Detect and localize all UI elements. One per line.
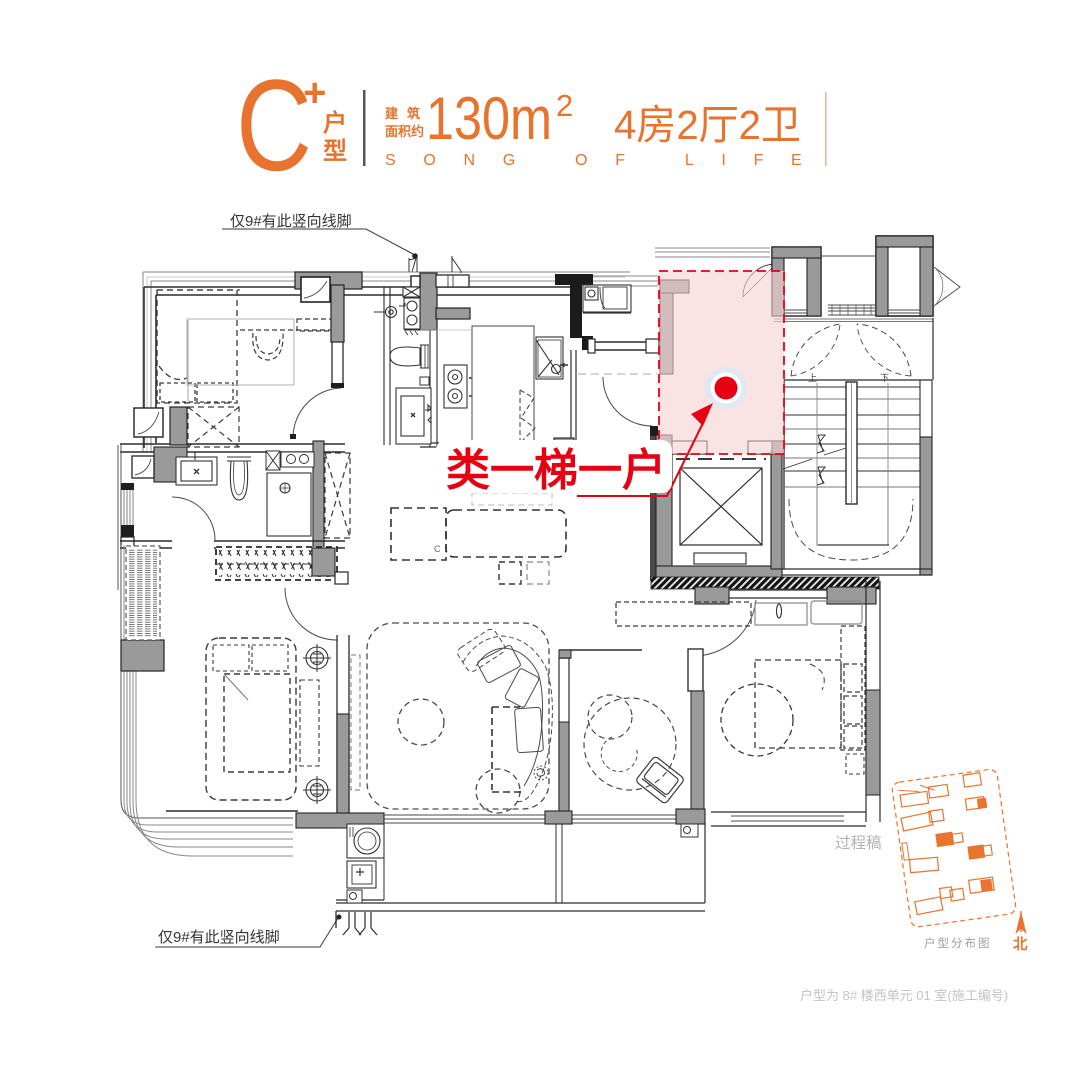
svg-text:4房2厅2卫: 4房2厅2卫 bbox=[614, 102, 801, 148]
svg-text:建筑: 建筑 bbox=[385, 106, 429, 121]
svg-text:130m: 130m bbox=[426, 85, 552, 152]
svg-text:北: 北 bbox=[1013, 936, 1028, 953]
svg-text:下: 下 bbox=[880, 373, 889, 383]
svg-text:仅9#有此竖向线脚: 仅9#有此竖向线脚 bbox=[230, 213, 352, 230]
svg-text:+: + bbox=[303, 71, 326, 115]
svg-text:面积约: 面积约 bbox=[385, 124, 424, 139]
svg-text:类一梯一户: 类一梯一户 bbox=[446, 446, 666, 495]
svg-text:2: 2 bbox=[556, 88, 573, 123]
svg-text:上: 上 bbox=[808, 373, 817, 383]
svg-text:SONG OF LIFE: SONG OF LIFE bbox=[385, 152, 829, 169]
svg-text:户: 户 bbox=[323, 109, 347, 137]
svg-text:型: 型 bbox=[323, 138, 347, 165]
svg-text:户型为 8# 楼西单元 01 室(施工编号): 户型为 8# 楼西单元 01 室(施工编号) bbox=[800, 988, 1008, 1003]
svg-text:过程稿: 过程稿 bbox=[835, 834, 882, 852]
svg-text:仅9#有此竖向线脚: 仅9#有此竖向线脚 bbox=[158, 929, 280, 946]
svg-text:C: C bbox=[434, 544, 441, 554]
svg-text:C: C bbox=[236, 52, 312, 198]
svg-text:户型分布图: 户型分布图 bbox=[924, 936, 992, 950]
